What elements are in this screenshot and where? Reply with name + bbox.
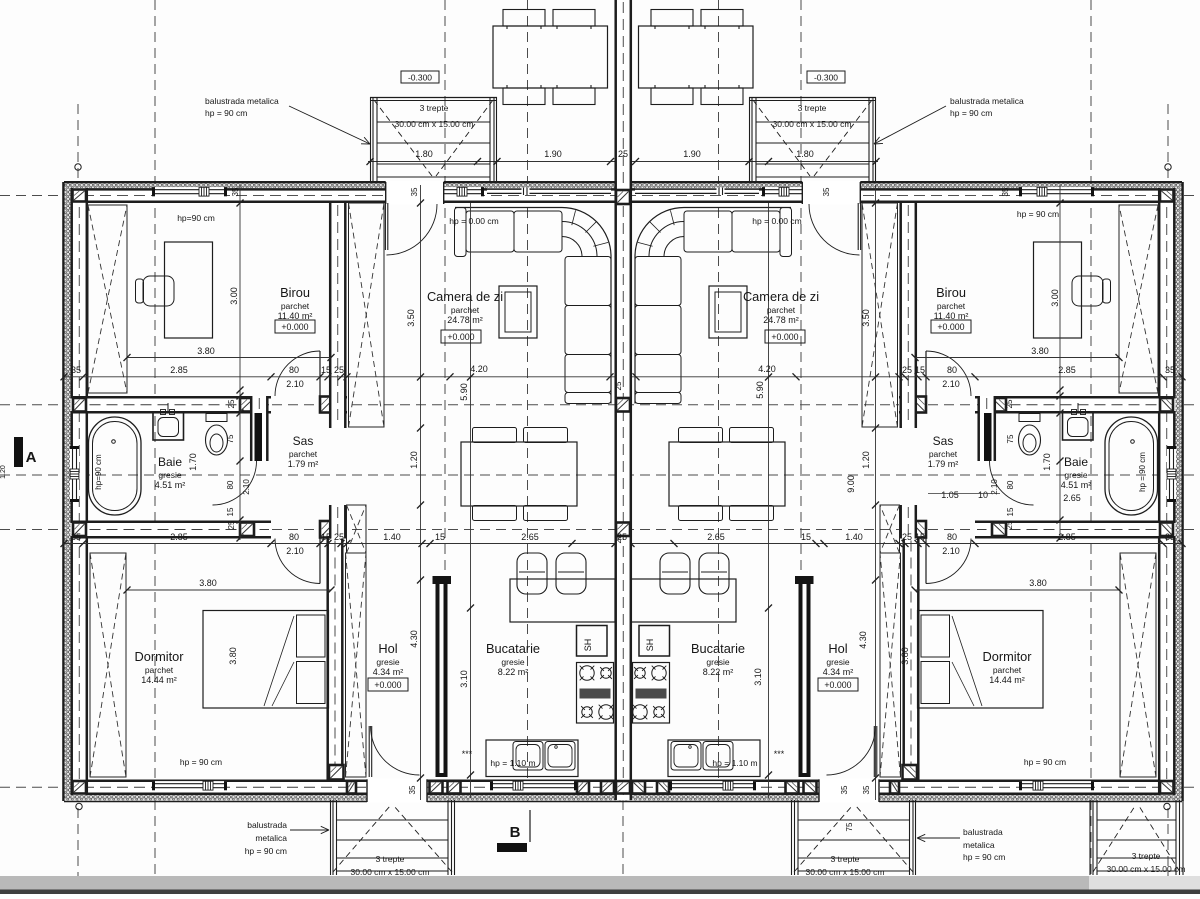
svg-text:Dormitor: Dormitor xyxy=(134,649,184,664)
svg-text:9.00: 9.00 xyxy=(846,475,856,493)
svg-text:B: B xyxy=(510,824,521,841)
svg-text:2.65: 2.65 xyxy=(521,532,539,542)
svg-text:25: 25 xyxy=(618,149,628,159)
svg-text:4.30: 4.30 xyxy=(409,630,419,648)
svg-text:parchet: parchet xyxy=(145,665,174,675)
svg-text:14.44 m²: 14.44 m² xyxy=(141,675,177,685)
svg-text:35: 35 xyxy=(862,785,871,794)
svg-text:Sas: Sas xyxy=(933,434,954,448)
svg-text:35: 35 xyxy=(840,785,849,794)
svg-text:80: 80 xyxy=(289,532,299,542)
svg-text:80: 80 xyxy=(289,365,299,375)
svg-text:25: 25 xyxy=(614,534,623,543)
svg-text:1.80: 1.80 xyxy=(415,149,433,159)
svg-text:1.70: 1.70 xyxy=(1042,453,1052,471)
svg-text:1.80: 1.80 xyxy=(796,149,814,159)
svg-text:35: 35 xyxy=(71,365,81,375)
svg-text:gresie: gresie xyxy=(158,470,181,480)
svg-text:hp = 1.10 m: hp = 1.10 m xyxy=(490,758,535,768)
svg-text:Hol: Hol xyxy=(828,641,847,656)
svg-text:hp = 90 cm: hp = 90 cm xyxy=(180,757,222,767)
svg-text:3.50: 3.50 xyxy=(406,309,416,327)
svg-text:14.44 m²: 14.44 m² xyxy=(989,675,1025,685)
svg-text:15: 15 xyxy=(226,507,235,516)
svg-text:30.00 cm x 15.00 cm: 30.00 cm x 15.00 cm xyxy=(1107,864,1186,874)
svg-text:Baie: Baie xyxy=(158,455,182,469)
svg-text:-0.300: -0.300 xyxy=(408,73,432,83)
svg-text:4.20: 4.20 xyxy=(758,364,776,374)
svg-text:15: 15 xyxy=(801,532,811,542)
svg-text:balustrada: balustrada xyxy=(963,827,1003,837)
svg-text:+0.000: +0.000 xyxy=(447,332,474,342)
svg-text:1.20: 1.20 xyxy=(861,451,871,469)
svg-text:parchet: parchet xyxy=(289,449,318,459)
svg-text:1.40: 1.40 xyxy=(383,532,401,542)
svg-text:25: 25 xyxy=(334,365,344,375)
svg-text:25: 25 xyxy=(902,532,912,542)
svg-text:25: 25 xyxy=(1005,520,1014,529)
svg-text:2.10: 2.10 xyxy=(242,479,251,495)
svg-text:1.20: 1.20 xyxy=(0,465,7,479)
svg-text:8.22 m²: 8.22 m² xyxy=(498,667,529,677)
svg-text:30.00 cm x 15.00 cm: 30.00 cm x 15.00 cm xyxy=(773,119,852,129)
svg-text:Camera de zi: Camera de zi xyxy=(743,289,819,304)
svg-text:35: 35 xyxy=(410,187,419,196)
svg-text:balustrada: balustrada xyxy=(247,820,287,830)
svg-text:8.22 m²: 8.22 m² xyxy=(703,667,734,677)
svg-text:Dormitor: Dormitor xyxy=(982,649,1032,664)
svg-text:1.20: 1.20 xyxy=(409,451,419,469)
svg-text:3.10: 3.10 xyxy=(459,670,469,688)
svg-text:5.90: 5.90 xyxy=(459,383,469,401)
svg-text:3.80: 3.80 xyxy=(1029,578,1047,588)
svg-text:3 trepte: 3 trepte xyxy=(1132,851,1161,861)
svg-text:balustrada metalica: balustrada metalica xyxy=(205,96,279,106)
svg-text:25: 25 xyxy=(227,520,236,529)
svg-text:hp = 0.00 cm: hp = 0.00 cm xyxy=(449,216,498,226)
svg-text:Birou: Birou xyxy=(280,285,310,300)
svg-text:2.65: 2.65 xyxy=(1063,493,1081,503)
svg-text:3 trepte: 3 trepte xyxy=(376,854,405,864)
svg-text:4.51 m²: 4.51 m² xyxy=(1061,480,1092,490)
svg-text:metalica: metalica xyxy=(255,833,287,843)
svg-text:hp = 90 cm: hp = 90 cm xyxy=(1138,452,1147,492)
svg-text:1.79 m²: 1.79 m² xyxy=(288,459,319,469)
svg-text:2.85: 2.85 xyxy=(170,365,188,375)
svg-text:parchet: parchet xyxy=(451,305,480,315)
svg-text:35: 35 xyxy=(1001,187,1010,196)
svg-text:30.00 cm x 15.00 cm: 30.00 cm x 15.00 cm xyxy=(806,867,885,877)
svg-text:4.34 m²: 4.34 m² xyxy=(373,667,404,677)
svg-text:4.34 m²: 4.34 m² xyxy=(823,667,854,677)
svg-text:hp = 90 cm: hp = 90 cm xyxy=(205,108,247,118)
svg-text:Hol: Hol xyxy=(378,641,397,656)
svg-text:3.50: 3.50 xyxy=(861,309,871,327)
svg-text:+0.000: +0.000 xyxy=(824,680,851,690)
svg-text:Sas: Sas xyxy=(293,434,314,448)
svg-text:***: *** xyxy=(774,749,785,759)
svg-text:25: 25 xyxy=(614,381,623,390)
svg-text:15: 15 xyxy=(321,365,331,375)
svg-text:hp=90 cm: hp=90 cm xyxy=(94,454,103,490)
svg-text:4.20: 4.20 xyxy=(470,364,488,374)
svg-text:1.79 m²: 1.79 m² xyxy=(928,459,959,469)
svg-text:35: 35 xyxy=(1165,532,1175,542)
svg-text:4.30: 4.30 xyxy=(858,631,868,649)
svg-text:A: A xyxy=(26,449,37,466)
svg-text:1.05: 1.05 xyxy=(941,490,959,500)
svg-text:hp = 90 cm: hp = 90 cm xyxy=(950,108,992,118)
svg-text:80: 80 xyxy=(947,365,957,375)
svg-text:balustrada metalica: balustrada metalica xyxy=(950,96,1024,106)
svg-text:***: *** xyxy=(462,749,473,759)
svg-text:+0.000: +0.000 xyxy=(771,332,798,342)
svg-text:25: 25 xyxy=(227,399,236,408)
svg-text:2.10: 2.10 xyxy=(942,379,960,389)
svg-text:hp = 1.10 m: hp = 1.10 m xyxy=(712,758,757,768)
svg-text:3.80: 3.80 xyxy=(900,647,910,665)
svg-text:35: 35 xyxy=(408,785,417,794)
svg-text:+0.000: +0.000 xyxy=(281,322,308,332)
svg-text:25: 25 xyxy=(1005,399,1014,408)
svg-text:80: 80 xyxy=(947,532,957,542)
svg-text:+0.000: +0.000 xyxy=(937,322,964,332)
svg-text:2.10: 2.10 xyxy=(990,479,999,495)
svg-text:Baie: Baie xyxy=(1064,455,1088,469)
svg-text:35: 35 xyxy=(822,187,831,196)
svg-text:hp=90 cm: hp=90 cm xyxy=(177,213,215,223)
svg-text:2.85: 2.85 xyxy=(170,532,188,542)
svg-text:gresie: gresie xyxy=(376,657,399,667)
svg-text:parchet: parchet xyxy=(993,665,1022,675)
svg-text:gresie: gresie xyxy=(826,657,849,667)
svg-text:1.40: 1.40 xyxy=(845,532,863,542)
svg-text:Camera de zi: Camera de zi xyxy=(427,289,503,304)
svg-text:parchet: parchet xyxy=(929,449,958,459)
svg-text:5.90: 5.90 xyxy=(755,381,765,399)
svg-text:2.85: 2.85 xyxy=(1058,532,1076,542)
svg-text:15: 15 xyxy=(435,532,445,542)
svg-text:3 trepte: 3 trepte xyxy=(420,103,449,113)
svg-text:gresie: gresie xyxy=(706,657,729,667)
svg-text:80: 80 xyxy=(1006,480,1015,489)
svg-text:parchet: parchet xyxy=(767,305,796,315)
svg-text:75: 75 xyxy=(1006,434,1015,443)
svg-text:15: 15 xyxy=(915,532,925,542)
svg-text:4.51 m²: 4.51 m² xyxy=(155,480,186,490)
svg-text:hp = 90 cm: hp = 90 cm xyxy=(1017,209,1059,219)
svg-text:3.10: 3.10 xyxy=(753,668,763,686)
svg-text:3.00: 3.00 xyxy=(1050,289,1060,307)
svg-text:75: 75 xyxy=(226,434,235,443)
svg-text:SH: SH xyxy=(645,639,655,652)
svg-text:parchet: parchet xyxy=(937,301,966,311)
svg-text:2.65: 2.65 xyxy=(707,532,725,542)
svg-text:15: 15 xyxy=(1006,507,1015,516)
svg-text:3.80: 3.80 xyxy=(228,647,238,665)
svg-text:35: 35 xyxy=(71,532,81,542)
svg-text:SH: SH xyxy=(583,639,593,652)
svg-text:80: 80 xyxy=(226,480,235,489)
svg-text:gresie: gresie xyxy=(1064,470,1087,480)
svg-text:2.85: 2.85 xyxy=(1058,365,1076,375)
svg-text:3 trepte: 3 trepte xyxy=(798,103,827,113)
svg-text:metalica: metalica xyxy=(963,840,995,850)
svg-text:24.78 m²: 24.78 m² xyxy=(763,315,799,325)
svg-text:1.90: 1.90 xyxy=(683,149,701,159)
svg-text:1.90: 1.90 xyxy=(544,149,562,159)
svg-text:15: 15 xyxy=(321,532,331,542)
svg-text:25: 25 xyxy=(334,532,344,542)
svg-text:24.78 m²: 24.78 m² xyxy=(447,315,483,325)
svg-text:35: 35 xyxy=(231,187,240,196)
svg-text:35: 35 xyxy=(1165,365,1175,375)
svg-text:30.00 cm x 15.00 cm: 30.00 cm x 15.00 cm xyxy=(395,119,474,129)
svg-text:2.10: 2.10 xyxy=(286,379,304,389)
svg-text:3 trepte: 3 trepte xyxy=(831,854,860,864)
svg-text:10: 10 xyxy=(978,490,988,500)
svg-text:hp = 90 cm: hp = 90 cm xyxy=(245,846,287,856)
svg-text:15: 15 xyxy=(915,365,925,375)
svg-text:hp = 90 cm: hp = 90 cm xyxy=(1024,757,1066,767)
svg-text:30.00 cm x 15.00 cm: 30.00 cm x 15.00 cm xyxy=(351,867,430,877)
svg-text:1.70: 1.70 xyxy=(188,453,198,471)
svg-text:+0.000: +0.000 xyxy=(374,680,401,690)
svg-text:2.10: 2.10 xyxy=(942,546,960,556)
svg-text:hp = 90 cm: hp = 90 cm xyxy=(963,852,1005,862)
svg-text:3.80: 3.80 xyxy=(1031,346,1049,356)
svg-text:25: 25 xyxy=(902,365,912,375)
svg-text:2.10: 2.10 xyxy=(286,546,304,556)
svg-text:Birou: Birou xyxy=(936,285,966,300)
svg-text:75: 75 xyxy=(845,822,854,831)
svg-text:hp = 0.00 cm: hp = 0.00 cm xyxy=(752,216,801,226)
svg-text:3.80: 3.80 xyxy=(197,346,215,356)
svg-text:gresie: gresie xyxy=(501,657,524,667)
svg-text:Bucatarie: Bucatarie xyxy=(486,641,540,656)
svg-text:3.80: 3.80 xyxy=(199,578,217,588)
svg-text:-0.300: -0.300 xyxy=(814,73,838,83)
svg-text:3.00: 3.00 xyxy=(229,287,239,305)
svg-text:Bucatarie: Bucatarie xyxy=(691,641,745,656)
svg-text:parchet: parchet xyxy=(281,301,310,311)
